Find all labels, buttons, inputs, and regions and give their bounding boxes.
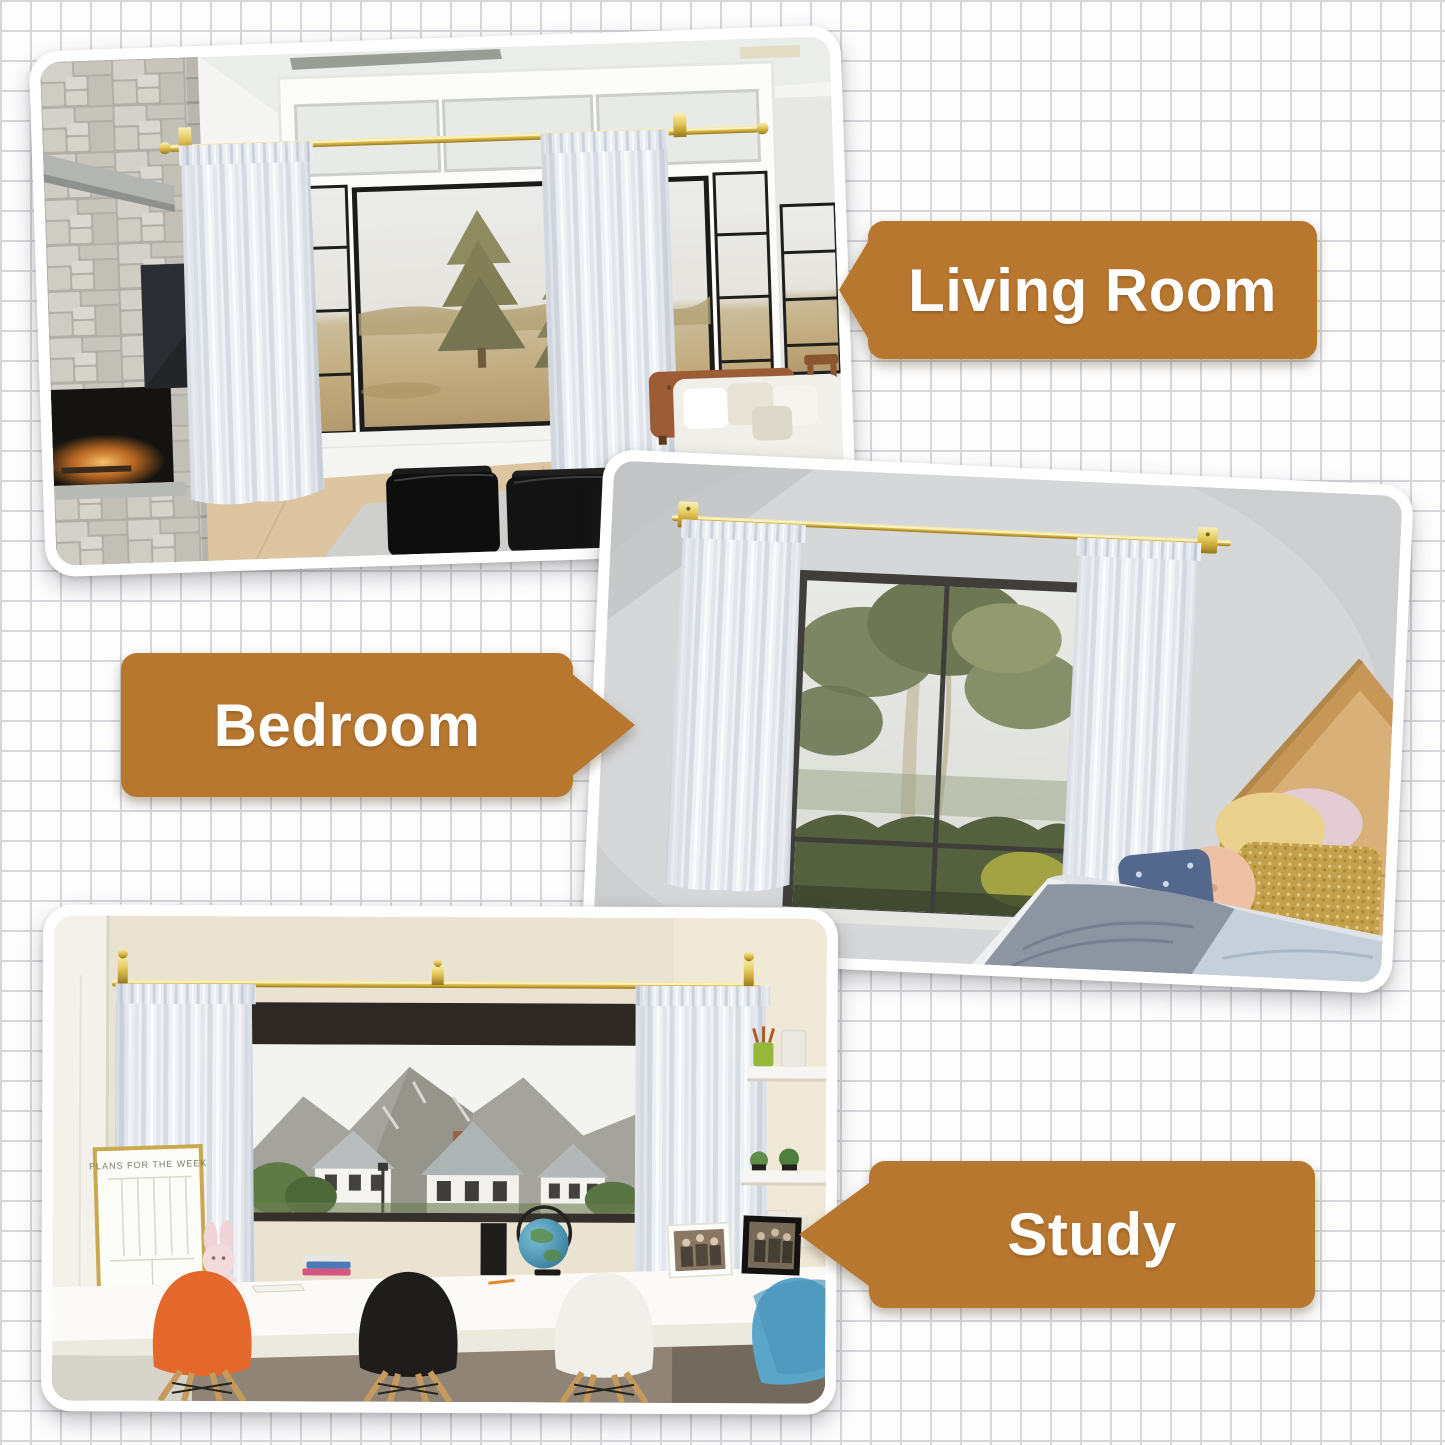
bedroom-callout: Bedroom [121,653,573,797]
study-window [243,1002,644,1223]
planner-board: PLANS FOR THE WEEK [89,1146,212,1294]
bedroom-scene [592,460,1402,982]
black-photo-frame [741,1215,801,1275]
product-collage: PLANS FOR THE WEEK [0,0,1445,1445]
bedroom-photo [592,460,1402,982]
curtain-left [179,141,325,505]
callout-label: Bedroom [214,691,481,760]
black-box [480,1223,506,1275]
callout-label: Study [1007,1200,1176,1269]
callout-label: Living Room [908,256,1277,325]
curtain-left [665,519,806,894]
study-photo-card: PLANS FOR THE WEEK [41,904,838,1414]
study-scene: PLANS FOR THE WEEK [52,915,827,1403]
living-room-callout: Living Room [868,221,1317,359]
study-photo: PLANS FOR THE WEEK [52,915,827,1403]
white-photo-frame [667,1223,731,1278]
study-callout: Study [869,1161,1315,1308]
